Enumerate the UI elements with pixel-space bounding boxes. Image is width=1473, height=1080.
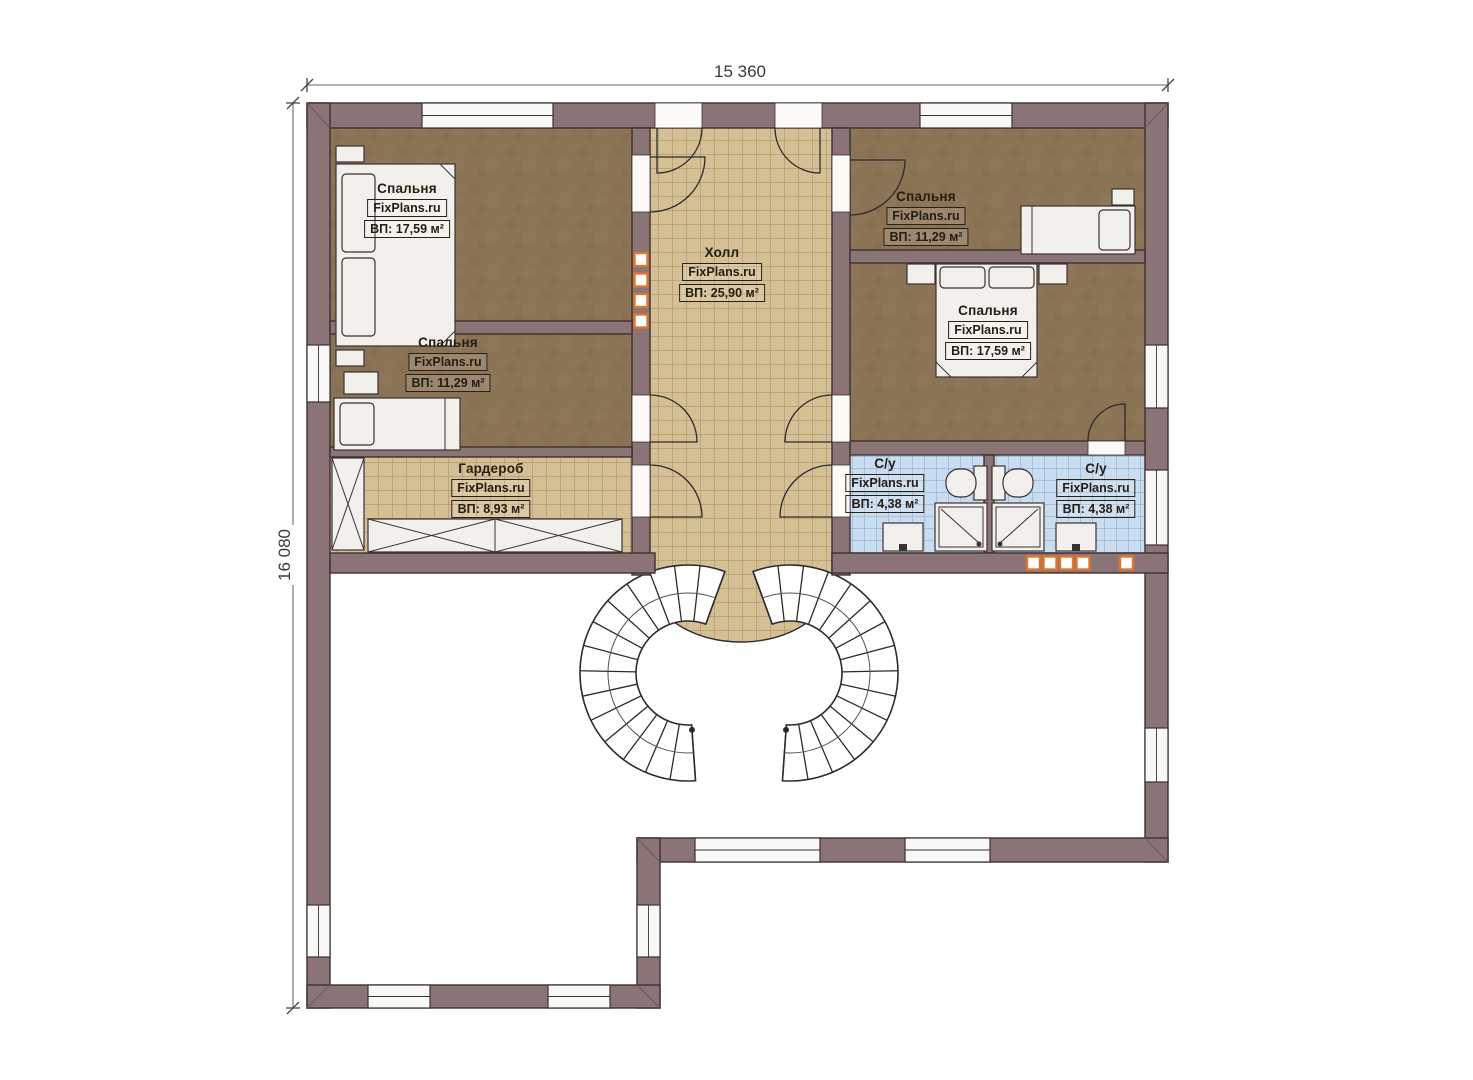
room-brand: FixPlans.ru	[948, 321, 1027, 339]
window	[1145, 728, 1168, 782]
nightstand	[336, 350, 364, 366]
room-area: ВП: 25,90 м²	[679, 284, 765, 302]
nightstand	[344, 372, 378, 394]
room-area: ВП: 8,93 м²	[452, 500, 531, 518]
room-label-bedroom-top-right: Спальня FixPlans.ru ВП: 11,29 м²	[883, 189, 968, 246]
toilet-bowl	[1003, 469, 1033, 497]
wall-wardrobe-bottom	[330, 553, 655, 573]
pillow	[342, 258, 375, 336]
window	[307, 905, 330, 957]
window	[920, 103, 1012, 128]
nightstand	[1112, 189, 1134, 205]
double-bed	[336, 146, 455, 366]
dimension-height: 16 080	[275, 525, 295, 585]
door-bedroom-mid-left-opening	[632, 395, 650, 442]
toilet-bowl	[946, 469, 976, 497]
room-name: С/у	[1056, 461, 1135, 476]
window	[368, 985, 430, 1008]
window	[307, 345, 330, 402]
window	[905, 838, 990, 862]
window	[637, 905, 660, 957]
room-brand: FixPlans.ru	[1056, 479, 1135, 497]
dimension-width: 15 360	[710, 62, 770, 82]
room-label-bathroom-left: С/у FixPlans.ru ВП: 4,38 м²	[845, 456, 924, 513]
shower-drain	[998, 542, 1003, 547]
room-area: ВП: 17,59 м²	[945, 342, 1031, 360]
room-name: Спальня	[405, 335, 490, 350]
sink-tap	[1072, 544, 1080, 551]
door-bedroom-right-opening	[832, 395, 850, 442]
room-name: Спальня	[945, 303, 1031, 318]
room-name: С/у	[845, 456, 924, 471]
room-label-bedroom-mid-left: Спальня FixPlans.ru ВП: 11,29 м²	[405, 335, 490, 392]
room-brand: FixPlans.ru	[682, 263, 761, 281]
room-area: ВП: 11,29 м²	[405, 374, 490, 392]
room-name: Холл	[679, 245, 765, 260]
room-label-hall: Холл FixPlans.ru ВП: 25,90 м²	[679, 245, 765, 302]
room-label-bathroom-right: С/у FixPlans.ru ВП: 4,38 м²	[1056, 461, 1135, 518]
balcony-door-right-opening	[775, 103, 822, 128]
room-area: ВП: 4,38 м²	[846, 495, 925, 513]
wall-exterior-left	[307, 103, 330, 1008]
room-label-bedroom-right: Спальня FixPlans.ru ВП: 17,59 м²	[945, 303, 1031, 360]
window	[422, 103, 553, 128]
nightstand	[1039, 264, 1067, 284]
nightstand	[336, 146, 364, 162]
room-area: ВП: 4,38 м²	[1057, 500, 1136, 518]
room-brand: FixPlans.ru	[845, 474, 924, 492]
door-bathroom-right-opening	[1088, 441, 1125, 455]
floor-plan-canvas: 15 360 16 080 Спальня FixPlans.ru ВП: 17…	[0, 0, 1473, 1080]
door-wardrobe-opening	[632, 465, 650, 517]
room-brand: FixPlans.ru	[451, 479, 530, 497]
pillow	[989, 267, 1034, 288]
room-brand: FixPlans.ru	[886, 207, 965, 225]
window	[695, 838, 820, 862]
nightstand	[907, 264, 935, 284]
window	[1145, 470, 1168, 545]
pillow	[1099, 210, 1130, 250]
pillow	[340, 403, 374, 445]
sink-tap	[899, 544, 907, 551]
shower-drain	[977, 542, 982, 547]
room-brand: FixPlans.ru	[408, 353, 487, 371]
room-label-wardrobe: Гардероб FixPlans.ru ВП: 8,93 м²	[451, 461, 530, 518]
balcony-door-left-opening	[655, 103, 702, 128]
door-bedroom-top-left-opening	[632, 155, 650, 212]
door-bedroom-top-right-opening	[832, 155, 850, 212]
room-name: Спальня	[883, 189, 968, 204]
room-brand: FixPlans.ru	[367, 199, 446, 217]
spiral-staircase-right	[753, 565, 898, 781]
wall-bathroom-bottom	[832, 553, 1168, 573]
pillow	[940, 267, 985, 288]
floor-plan-drawing	[0, 0, 1473, 1080]
room-label-bedroom-top-left: Спальня FixPlans.ru ВП: 17,59 м²	[364, 181, 450, 238]
room-name: Спальня	[364, 181, 450, 196]
floor-hall	[650, 128, 832, 580]
room-area: ВП: 17,59 м²	[364, 220, 450, 238]
room-name: Гардероб	[451, 461, 530, 476]
spiral-staircase-left	[580, 565, 725, 781]
window	[548, 985, 610, 1008]
window	[1145, 345, 1168, 408]
room-area: ВП: 11,29 м²	[883, 228, 968, 246]
